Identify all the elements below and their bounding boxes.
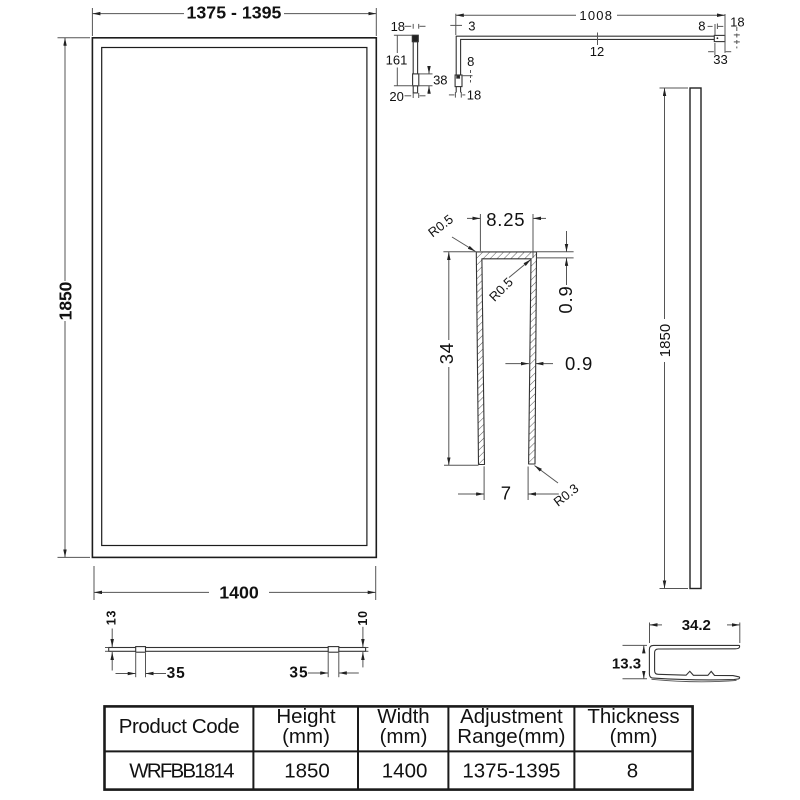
svg-text:18: 18 — [730, 14, 744, 29]
svg-text:0.9: 0.9 — [555, 285, 576, 313]
svg-text:(mm): (mm) — [610, 725, 658, 748]
svg-text:18: 18 — [391, 19, 405, 34]
svg-text:20: 20 — [389, 89, 403, 104]
svg-text:33: 33 — [713, 52, 727, 67]
svg-text:1375-1395: 1375-1395 — [462, 759, 560, 782]
svg-text:1850: 1850 — [284, 759, 330, 782]
svg-text:Product Code: Product Code — [119, 715, 240, 738]
svg-text:Range(mm): Range(mm) — [457, 725, 565, 748]
svg-text:34: 34 — [436, 342, 457, 364]
svg-text:8: 8 — [698, 18, 705, 33]
svg-text:34.2: 34.2 — [682, 617, 711, 634]
svg-text:1375 - 1395: 1375 - 1395 — [187, 3, 282, 23]
svg-text:WRFBB1814: WRFBB1814 — [129, 759, 234, 782]
svg-text:18: 18 — [467, 88, 481, 103]
svg-text:35: 35 — [167, 665, 186, 682]
svg-text:13.3: 13.3 — [612, 655, 641, 672]
svg-text:161: 161 — [386, 53, 408, 68]
svg-text:1400: 1400 — [219, 582, 259, 602]
svg-text:8: 8 — [627, 759, 638, 782]
svg-text:38: 38 — [433, 72, 447, 87]
svg-text:1400: 1400 — [382, 759, 428, 782]
svg-text:0.9: 0.9 — [565, 353, 593, 374]
svg-text:7: 7 — [501, 483, 512, 504]
svg-text:(mm): (mm) — [380, 725, 428, 748]
svg-text:1008: 1008 — [579, 8, 613, 23]
svg-text:35: 35 — [289, 665, 308, 682]
svg-text:8.25: 8.25 — [486, 209, 525, 230]
svg-text:13: 13 — [105, 610, 119, 626]
svg-text:8: 8 — [467, 54, 474, 69]
svg-text:1850: 1850 — [55, 282, 75, 321]
svg-text:12: 12 — [590, 44, 604, 59]
svg-text:1850: 1850 — [657, 324, 674, 357]
svg-text:10: 10 — [356, 610, 370, 626]
svg-text:3: 3 — [468, 19, 475, 34]
svg-text:(mm): (mm) — [282, 725, 330, 748]
